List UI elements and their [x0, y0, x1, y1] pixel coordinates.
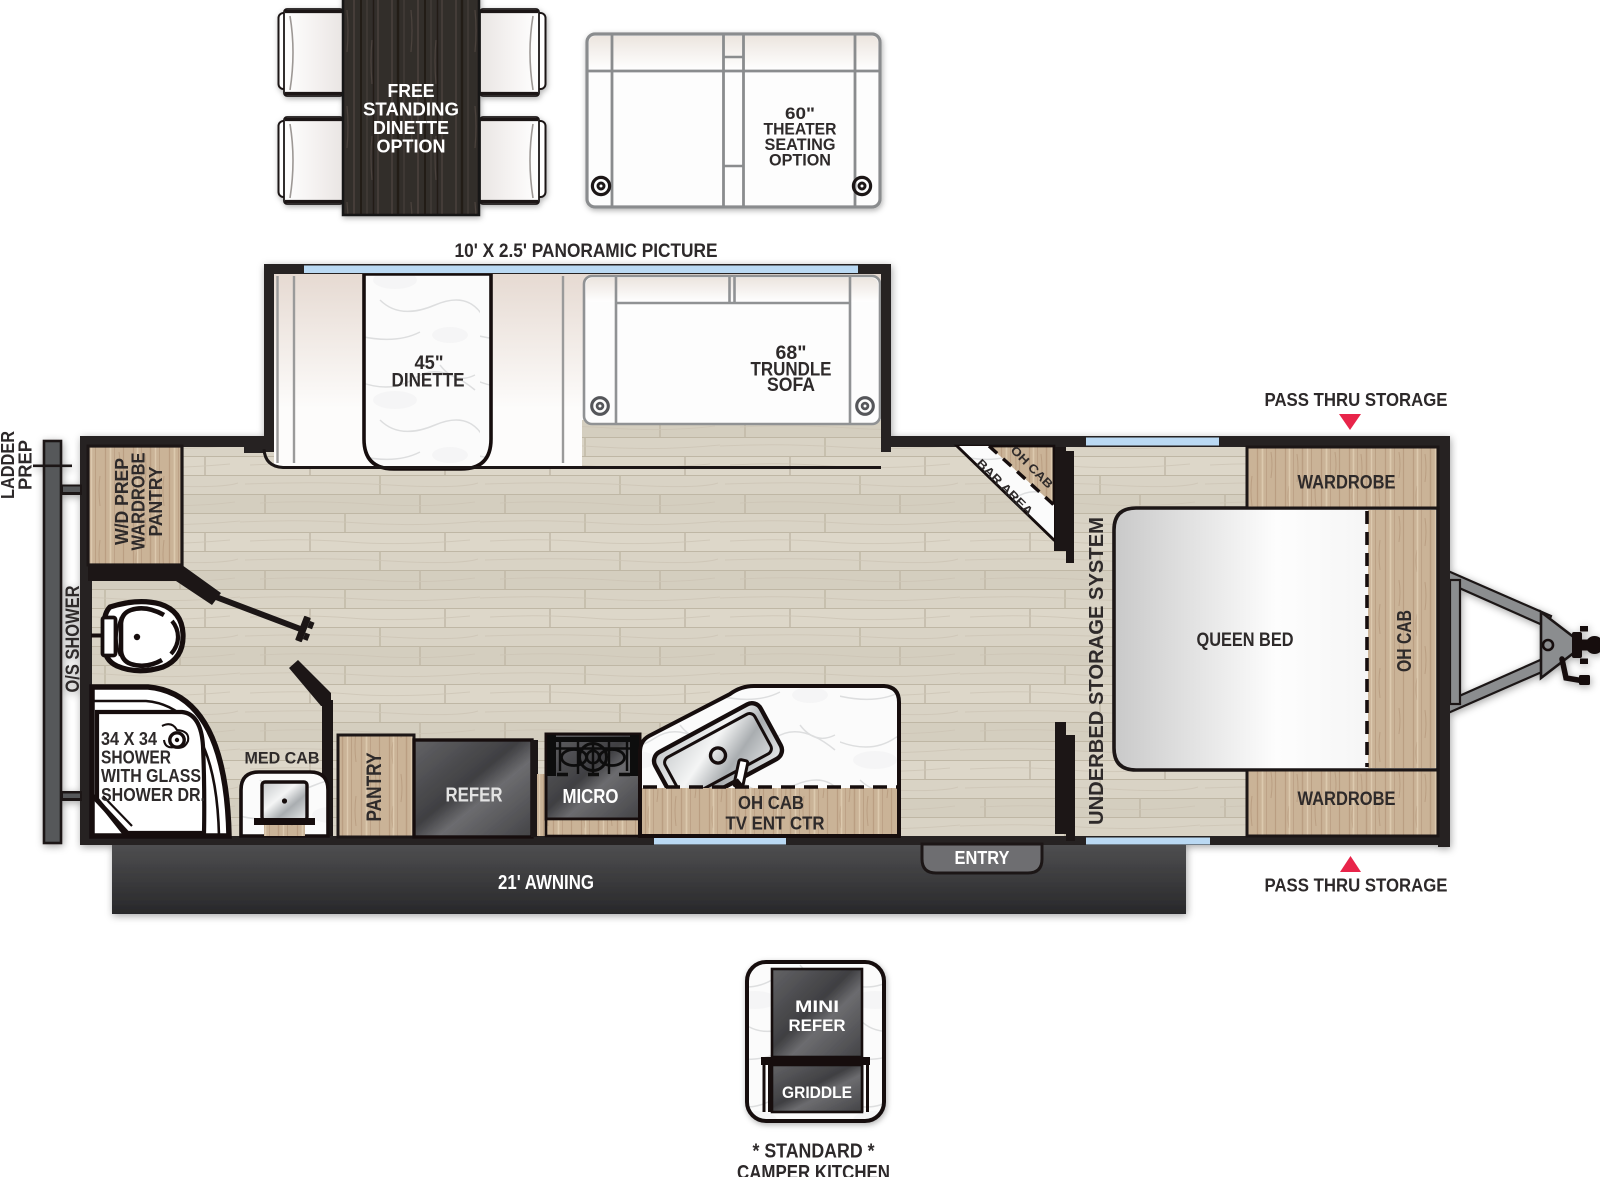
svg-text:WARDROBE: WARDROBE	[1298, 789, 1396, 810]
svg-text:UNDERBED STORAGE SYSTEM: UNDERBED STORAGE SYSTEM	[1086, 517, 1108, 825]
svg-text:OH CAB: OH CAB	[1394, 610, 1416, 672]
svg-text:SHOWER: SHOWER	[101, 748, 171, 768]
svg-text:WITH GLASS: WITH GLASS	[101, 766, 201, 786]
svg-text:MED CAB: MED CAB	[245, 750, 320, 768]
svg-text:WARDROBE: WARDROBE	[1298, 473, 1396, 494]
svg-text:MINI: MINI	[795, 997, 839, 1016]
svg-text:DINETTE: DINETTE	[392, 371, 465, 392]
svg-text:34 X 34: 34 X 34	[101, 729, 157, 749]
svg-text:O/S SHOWER: O/S SHOWER	[63, 585, 84, 692]
svg-text:10' X 2.5' PANORAMIC PICTURE: 10' X 2.5' PANORAMIC PICTURE	[455, 240, 718, 262]
svg-text:OH CAB: OH CAB	[738, 793, 804, 813]
svg-text:MICRO: MICRO	[563, 786, 619, 808]
svg-text:TV ENT CTR: TV ENT CTR	[726, 814, 825, 834]
svg-text:ENTRY: ENTRY	[955, 848, 1010, 868]
svg-text:* STANDARD *: * STANDARD *	[753, 1141, 875, 1163]
svg-text:21' AWNING: 21' AWNING	[498, 872, 594, 894]
svg-text:PASS THRU STORAGE: PASS THRU STORAGE	[1265, 876, 1448, 896]
svg-text:CAMPER KITCHEN: CAMPER KITCHEN	[737, 1162, 890, 1177]
svg-text:PREP: PREP	[16, 440, 36, 490]
svg-text:PANTRY: PANTRY	[146, 467, 166, 537]
svg-text:OPTION: OPTION	[769, 152, 831, 170]
svg-text:SOFA: SOFA	[767, 375, 815, 396]
svg-text:REFER: REFER	[789, 1016, 846, 1035]
svg-text:QUEEN BED: QUEEN BED	[1197, 630, 1294, 651]
svg-text:GRIDDLE: GRIDDLE	[782, 1083, 852, 1102]
svg-text:REFER: REFER	[446, 785, 503, 807]
svg-text:PASS THRU STORAGE: PASS THRU STORAGE	[1265, 390, 1448, 410]
svg-text:OPTION: OPTION	[377, 136, 446, 157]
svg-text:SHOWER DR.: SHOWER DR.	[101, 785, 205, 805]
svg-text:PANTRY: PANTRY	[363, 753, 386, 822]
